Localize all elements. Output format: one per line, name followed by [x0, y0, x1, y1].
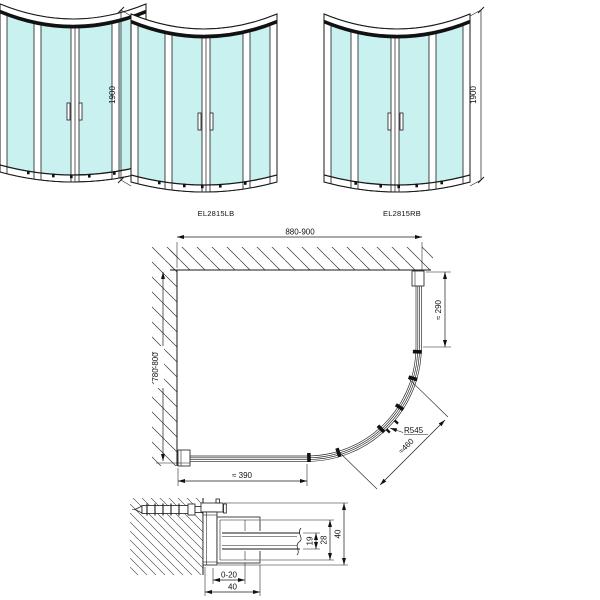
- width-dim-text: 880-900: [285, 228, 315, 237]
- front-dim-text: ≈ 390: [232, 471, 253, 480]
- roller-mark: [27, 171, 30, 175]
- radius-dim-text: R545: [404, 426, 424, 435]
- width40-dim-text: 40: [228, 583, 237, 592]
- elevation-right-height-dim: 1900: [469, 7, 484, 186]
- profile-top-cap: [201, 503, 223, 512]
- detail-glass-dim: 19: [303, 533, 320, 549]
- bottom-straight-glass: [190, 456, 307, 461]
- elevation-right-view: [324, 10, 470, 202]
- entry-dim-text: ≈460: [397, 436, 416, 455]
- door-handle-left: [67, 103, 70, 120]
- top-wall-hatch: [170, 247, 433, 270]
- drawing-canvas: 1900 1900 EL2815LB EL2815RB: [0, 0, 600, 600]
- model-label-right: EL2815RB: [383, 209, 421, 218]
- plan-side-dim: ≈ 290: [423, 272, 451, 347]
- roller-mark: [70, 175, 73, 179]
- elevation-left-view: [131, 10, 277, 202]
- wall-profile-bottom: [178, 450, 190, 466]
- left-frame-profile: [0, 0, 7, 192]
- technical-drawing-page: 1900 1900 EL2815LB EL2815RB: [0, 0, 600, 600]
- door-handle-right: [79, 103, 82, 120]
- height40-dim-text: 40: [334, 529, 343, 538]
- adjust-dim-text: 0-20: [221, 571, 238, 580]
- inner28-dim-text: 28: [320, 535, 329, 544]
- plan-entry-dim: ≈460: [337, 378, 448, 489]
- plan-radius-callout: R545: [390, 426, 428, 435]
- side-dim-text: ≈ 290: [434, 299, 443, 320]
- shower-enclosure-elevation: [0, 0, 146, 192]
- roller-mark: [52, 174, 55, 178]
- detail-frame-assembly: [217, 517, 302, 563]
- mullion-left: [34, 0, 41, 192]
- section-detail-view: 0-20 40 19 28 40: [130, 498, 348, 596]
- cap-washer: [224, 504, 227, 513]
- roller-mark: [88, 174, 91, 178]
- height-dim-text-left: 1900: [108, 86, 117, 104]
- cap-stud: [216, 499, 220, 503]
- right-straight-glass: [416, 286, 421, 347]
- roller-mark: [113, 171, 116, 175]
- screw-head: [188, 504, 195, 515]
- profile-body: [203, 512, 217, 565]
- plug-body: [142, 506, 188, 514]
- depth-dim-text: 780-800: [151, 352, 160, 382]
- plan-view: 880-900 780-800 ≈ 290 ≈ 390 R545: [151, 228, 451, 490]
- height-dim-text-right: 1900: [469, 86, 478, 104]
- wall-profile-top: [412, 271, 424, 286]
- glass-pocket: [222, 531, 302, 551]
- model-label-left: EL2815LB: [198, 209, 235, 218]
- plan-front-dim: ≈ 390: [178, 464, 307, 486]
- glass19-dim-text: 19: [306, 536, 315, 545]
- detail-adjust-dim: 0-20: [213, 563, 245, 584]
